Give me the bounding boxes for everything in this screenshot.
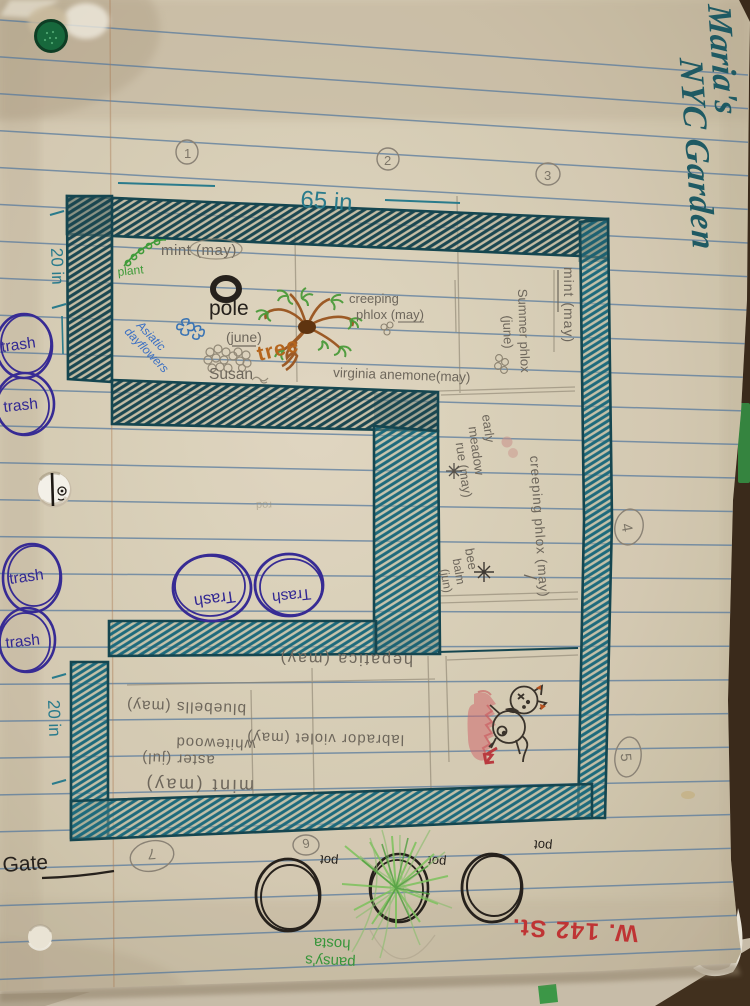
svg-text:20 in: 20 in [44,699,64,737]
svg-text:pot: pot [427,853,447,870]
svg-text:65 in: 65 in [300,186,354,217]
svg-text:labrador violet (may): labrador violet (may) [246,729,404,749]
svg-text:plant: plant [117,262,145,279]
svg-text:phlox (may): phlox (may) [356,307,424,322]
svg-text:creeping: creeping [349,291,399,306]
svg-text:rod: rod [256,499,272,512]
svg-text:Susan: Susan [209,366,253,383]
svg-text:mint (may): mint (may) [144,774,254,796]
svg-text:hosta: hosta [313,934,351,953]
svg-text:3: 3 [544,168,551,183]
svg-text:2: 2 [384,153,391,168]
svg-text:trash: trash [5,631,41,652]
svg-text:whitewood: whitewood [175,733,256,753]
svg-text:Gate: Gate [2,851,49,877]
svg-text:Summer phlox: Summer phlox [515,289,533,374]
svg-text:mint (may): mint (may) [561,267,577,343]
svg-text:pole: pole [209,297,249,320]
svg-text:trash: trash [3,395,39,416]
svg-text:20 in: 20 in [47,247,67,285]
svg-text:(june): (june) [500,315,516,349]
svg-text:pot: pot [319,852,339,869]
svg-text:pot: pot [533,837,553,854]
svg-text:pansy's: pansy's [305,951,356,971]
svg-text:7: 7 [147,845,157,863]
svg-text:5: 5 [617,752,635,762]
svg-text:hepatica (may): hepatica (may) [279,649,414,669]
svg-text:1: 1 [184,146,191,161]
svg-text:aster (jul): aster (jul) [141,749,215,769]
